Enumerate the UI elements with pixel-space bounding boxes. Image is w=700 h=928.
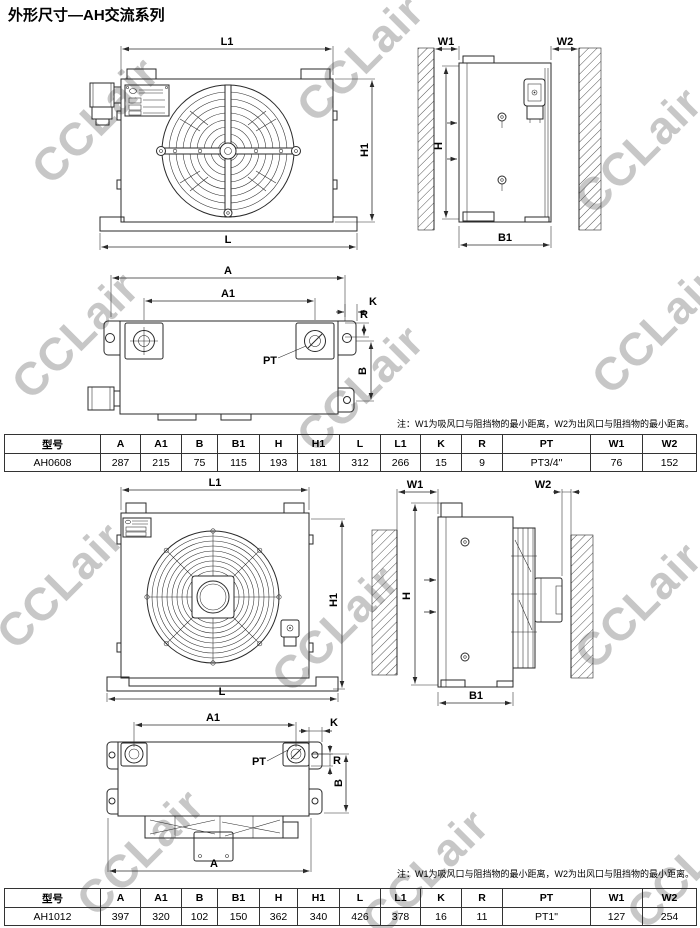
dim-label-pt: PT [263,355,277,367]
nameplate [125,85,169,116]
column-header: L [340,435,381,454]
drawing-side-view-ah0608: W1 W2 H [418,36,601,248]
oil-port-left [125,323,163,359]
drawing-top-view-ah0608: A A1 PT [88,265,377,420]
column-header: L1 [381,435,421,454]
cell: 76 [591,454,643,472]
spec-table-ah0608: 型号 A A1 B B1 H H1 L L1 K R PT W1 W2 AH06… [4,434,697,472]
table-row: AH1012 397 320 102 150 362 340 426 378 1… [5,908,697,926]
column-header: B [182,435,218,454]
column-header: B [182,889,218,908]
cell: 362 [260,908,298,926]
column-header: A [101,435,141,454]
column-header: H1 [298,889,340,908]
drawing-front-view-ah0608: L1 [90,36,375,250]
note-clearance-2: 注：W1为吸风口与阻挡物的最小距离，W2为出风口与阻挡物的最小距离。 [397,867,694,880]
column-header: K [421,889,462,908]
fan-shroud-side [511,528,537,668]
drawing-top-view-ah1012: A1 PT [107,712,349,872]
dim-label-h: H [401,592,413,600]
column-header: R [462,435,503,454]
column-header: 型号 [5,435,101,454]
cell-model: AH0608 [5,454,101,472]
column-header: A1 [141,889,182,908]
electrical-connector-top [88,387,120,410]
cell: PT1" [503,908,591,926]
dim-label-w2: W2 [535,479,552,491]
dim-label-b: B [333,779,345,787]
dim-label-b1: B1 [469,690,483,702]
cell-model: AH1012 [5,908,101,926]
dim-label-r: R [360,309,368,321]
cell: 254 [643,908,697,926]
cell: 215 [141,454,182,472]
column-header: H1 [298,435,340,454]
cell: 150 [218,908,260,926]
column-header: R [462,889,503,908]
oil-port-right [296,323,334,359]
dim-label-l1: L1 [209,477,222,489]
nameplate [123,518,151,537]
drawing-side-view-ah1012: W1 W2 H [372,479,593,706]
cell: 127 [591,908,643,926]
fan-housing-top [145,816,298,861]
electrical-connector [90,83,121,125]
column-header: K [421,435,462,454]
dim-label-a: A [224,265,232,277]
column-header: PT [503,889,591,908]
dim-label-k: K [330,717,338,729]
dim-label-b: B [357,367,369,375]
column-header: A1 [141,435,182,454]
dim-label-l: L [225,234,232,246]
cell: 15 [421,454,462,472]
column-header: W1 [591,435,643,454]
column-header: W2 [643,435,697,454]
cell: 16 [421,908,462,926]
table-header-row: 型号 A A1 B B1 H H1 L L1 K R PT W1 W2 [5,435,697,454]
cell: 287 [101,454,141,472]
fan-guard [157,85,301,217]
cell: 320 [141,908,182,926]
junction-box [281,620,299,646]
datasheet-page: CCLair CCLair CCLair CCLair CCLair CCLai… [0,0,700,928]
spec-table-ah1012: 型号 A A1 B B1 H H1 L L1 K R PT W1 W2 AH10… [4,888,697,926]
drawing-front-view-ah1012: L1 [107,477,345,702]
column-header: L1 [381,889,421,908]
cell: 9 [462,454,503,472]
cell: 152 [643,454,697,472]
cell: 193 [260,454,298,472]
cell: PT3/4" [503,454,591,472]
column-header: L [340,889,381,908]
dim-label-l: L [219,686,226,698]
column-header: W1 [591,889,643,908]
cell: 340 [298,908,340,926]
dim-label-h1: H1 [328,593,340,607]
cell: 312 [340,454,381,472]
dim-label-a: A [210,858,218,870]
dim-label-h: H [433,142,445,150]
dim-label-b1: B1 [498,232,512,244]
column-header: W2 [643,889,697,908]
dim-label-l1: L1 [221,36,234,48]
cell: 75 [182,454,218,472]
column-header: A [101,889,141,908]
dim-label-w1: W1 [438,36,455,48]
dim-label-a1: A1 [206,712,220,724]
table-header-row: 型号 A A1 B B1 H H1 L L1 K R PT W1 W2 [5,889,697,908]
column-header: B1 [218,435,260,454]
table-row: AH0608 287 215 75 115 193 181 312 266 15… [5,454,697,472]
cell: 397 [101,908,141,926]
column-header: PT [503,435,591,454]
dim-label-pt: PT [252,756,266,768]
cell: 102 [182,908,218,926]
cell: 11 [462,908,503,926]
fan-guard [145,529,281,665]
dim-label-a1: A1 [221,288,235,300]
dim-label-h1: H1 [359,143,371,157]
cell: 115 [218,454,260,472]
cell: 378 [381,908,421,926]
note-clearance-1: 注：W1为吸风口与阻挡物的最小距离，W2为出风口与阻挡物的最小距离。 [397,417,694,430]
column-header: H [260,889,298,908]
dim-label-k: K [369,296,377,308]
dim-label-r: R [333,755,341,767]
cell: 181 [298,454,340,472]
column-header: 型号 [5,889,101,908]
column-header: B1 [218,889,260,908]
electrical-connector-side [524,79,545,123]
cell: 426 [340,908,381,926]
fan-motor [535,578,562,622]
cell: 266 [381,454,421,472]
dim-label-w2: W2 [557,36,574,48]
dim-label-w1: W1 [407,479,424,491]
column-header: H [260,435,298,454]
